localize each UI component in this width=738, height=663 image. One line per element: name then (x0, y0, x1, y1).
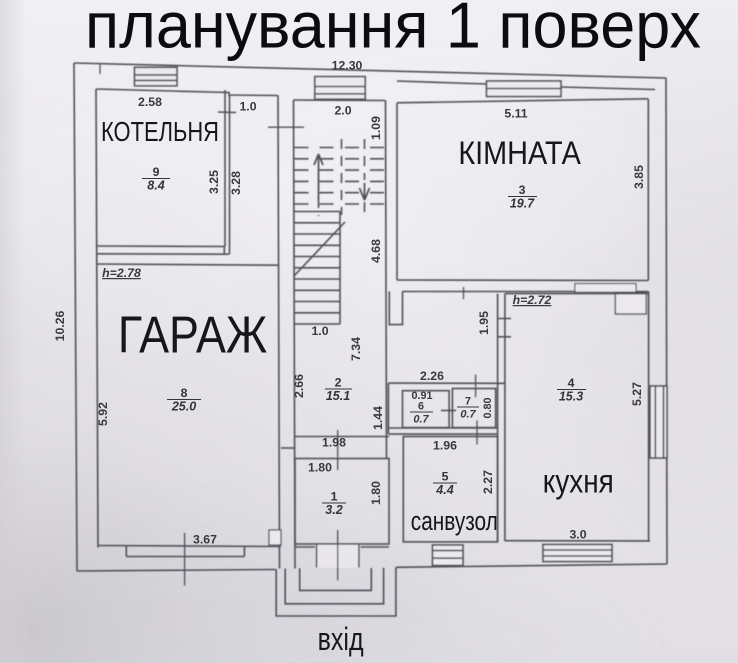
svg-text:h=2.72: h=2.72 (513, 293, 552, 307)
svg-text:12.30: 12.30 (332, 59, 363, 73)
svg-text:h=2.78: h=2.78 (102, 266, 141, 280)
svg-text:3.25: 3.25 (207, 170, 221, 194)
svg-text:5.27: 5.27 (630, 382, 644, 406)
svg-text:КІМНАТА: КІМНАТА (458, 135, 581, 171)
svg-text:2.0: 2.0 (334, 104, 351, 118)
svg-text:1.0: 1.0 (311, 324, 328, 338)
svg-text:15.3: 15.3 (559, 390, 583, 404)
svg-text:9: 9 (153, 165, 160, 179)
svg-text:3: 3 (519, 183, 526, 197)
svg-text:3.28: 3.28 (229, 171, 243, 195)
svg-text:3.0: 3.0 (569, 528, 586, 542)
svg-text:0.7: 0.7 (460, 409, 476, 421)
svg-text:7: 7 (465, 396, 471, 408)
svg-text:2.26: 2.26 (420, 369, 444, 383)
svg-text:7.34: 7.34 (349, 337, 363, 361)
svg-text:0.7: 0.7 (413, 414, 429, 426)
svg-text:санвузол: санвузол (411, 506, 498, 536)
svg-text:3.2: 3.2 (325, 503, 342, 517)
svg-text:КОТЕЛЬНЯ: КОТЕЛЬНЯ (101, 116, 219, 147)
svg-text:3.85: 3.85 (632, 165, 646, 189)
svg-text:1.44: 1.44 (371, 406, 385, 430)
svg-text:1.0: 1.0 (239, 100, 256, 114)
svg-text:2.66: 2.66 (292, 374, 306, 398)
svg-text:4: 4 (568, 376, 575, 390)
svg-text:1.80: 1.80 (308, 461, 332, 475)
svg-text:планування 1 поверх: планування 1 поверх (85, 0, 701, 62)
svg-text:вхід: вхід (318, 621, 364, 657)
svg-text:кухня: кухня (543, 463, 614, 500)
svg-text:2: 2 (335, 376, 342, 390)
svg-text:1.95: 1.95 (477, 311, 491, 335)
svg-text:1.96: 1.96 (433, 439, 457, 453)
svg-text:8: 8 (181, 386, 188, 400)
svg-text:8.4: 8.4 (147, 179, 164, 193)
svg-text:6: 6 (418, 401, 424, 413)
svg-text:1: 1 (331, 490, 338, 504)
svg-text:15.1: 15.1 (326, 389, 350, 403)
svg-text:4.68: 4.68 (369, 239, 383, 263)
svg-text:25.0: 25.0 (171, 400, 196, 414)
svg-text:5.92: 5.92 (96, 402, 110, 426)
svg-text:1.80: 1.80 (369, 481, 383, 505)
svg-text:2.58: 2.58 (138, 95, 162, 109)
svg-text:5: 5 (442, 470, 449, 484)
svg-text:0.80: 0.80 (482, 397, 494, 418)
svg-text:10.26: 10.26 (53, 310, 67, 341)
svg-text:4.4: 4.4 (435, 483, 453, 497)
svg-text:3.67: 3.67 (193, 533, 217, 547)
svg-text:2.27: 2.27 (481, 470, 495, 494)
svg-text:ГАРАЖ: ГАРАЖ (118, 306, 268, 364)
svg-text:19.7: 19.7 (510, 197, 535, 211)
svg-text:1.98: 1.98 (322, 436, 346, 450)
svg-text:1.09: 1.09 (369, 116, 383, 140)
svg-text:5.11: 5.11 (504, 107, 527, 121)
